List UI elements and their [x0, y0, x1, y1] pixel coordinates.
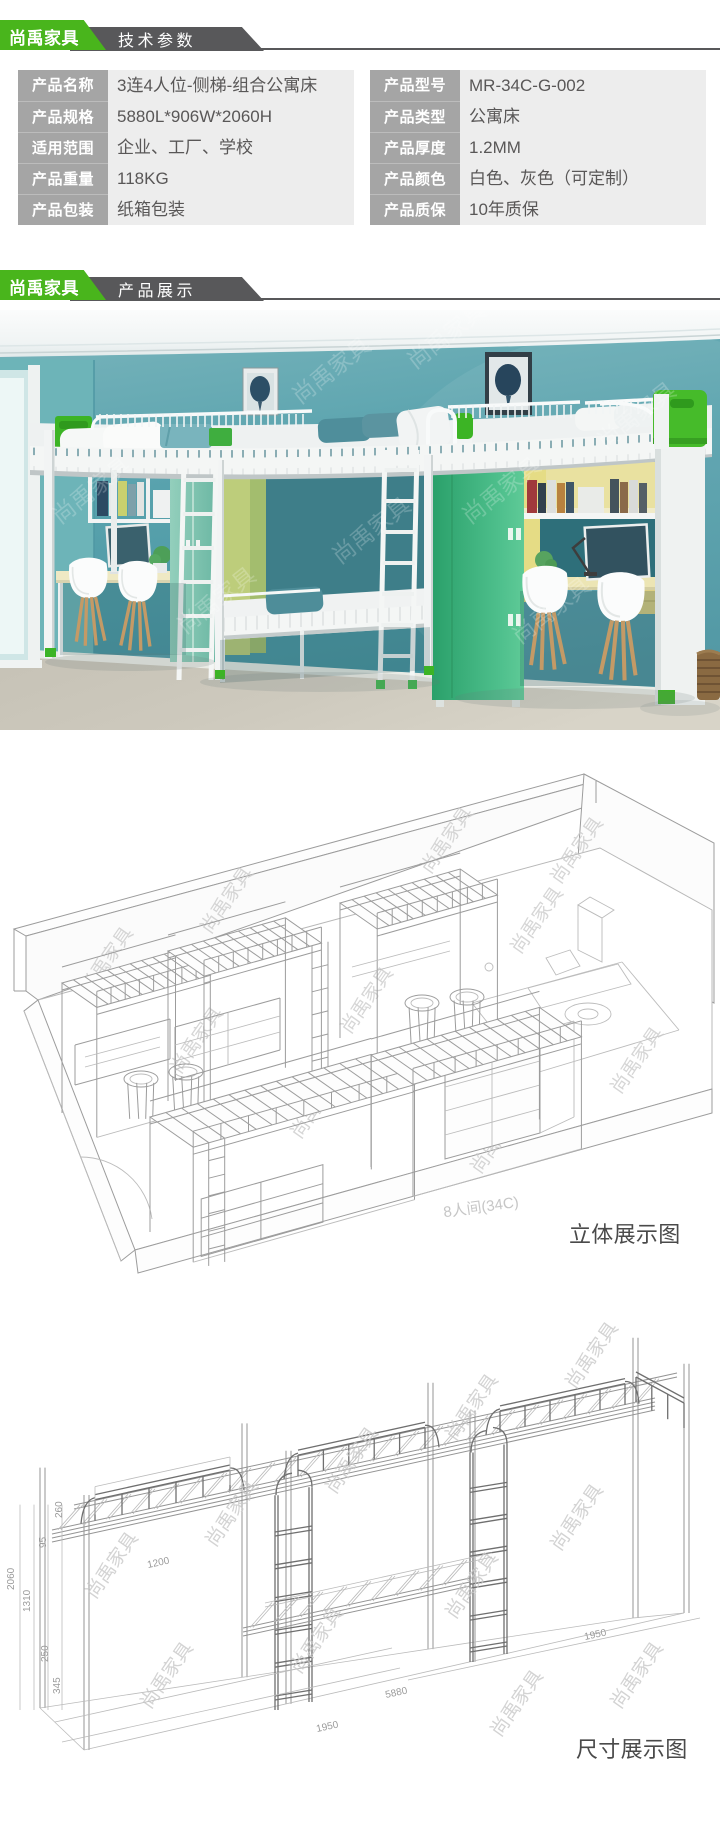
svg-text:250: 250 [40, 1645, 51, 1662]
svg-text:260: 260 [54, 1501, 65, 1518]
svg-text:5880: 5880 [384, 1685, 408, 1700]
svg-text:尚禹家具: 尚禹家具 [136, 1638, 198, 1713]
svg-text:1950: 1950 [583, 1627, 607, 1642]
svg-text:尚禹家具: 尚禹家具 [201, 1476, 263, 1551]
svg-text:尚禹家具: 尚禹家具 [286, 1603, 348, 1678]
svg-text:345: 345 [52, 1677, 63, 1694]
svg-text:1950: 1950 [315, 1719, 339, 1734]
svg-text:2060: 2060 [6, 1567, 17, 1590]
svg-text:尚禹家具: 尚禹家具 [546, 1480, 608, 1555]
svg-text:尚禹家具: 尚禹家具 [486, 1666, 548, 1741]
svg-text:1310: 1310 [22, 1589, 33, 1612]
svg-text:尚禹家具: 尚禹家具 [81, 1528, 143, 1603]
svg-text:1200: 1200 [146, 1555, 170, 1570]
svg-text:尚禹家具: 尚禹家具 [606, 1638, 668, 1713]
svg-text:95: 95 [38, 1536, 49, 1548]
svg-text:尚禹家具: 尚禹家具 [441, 1548, 503, 1623]
